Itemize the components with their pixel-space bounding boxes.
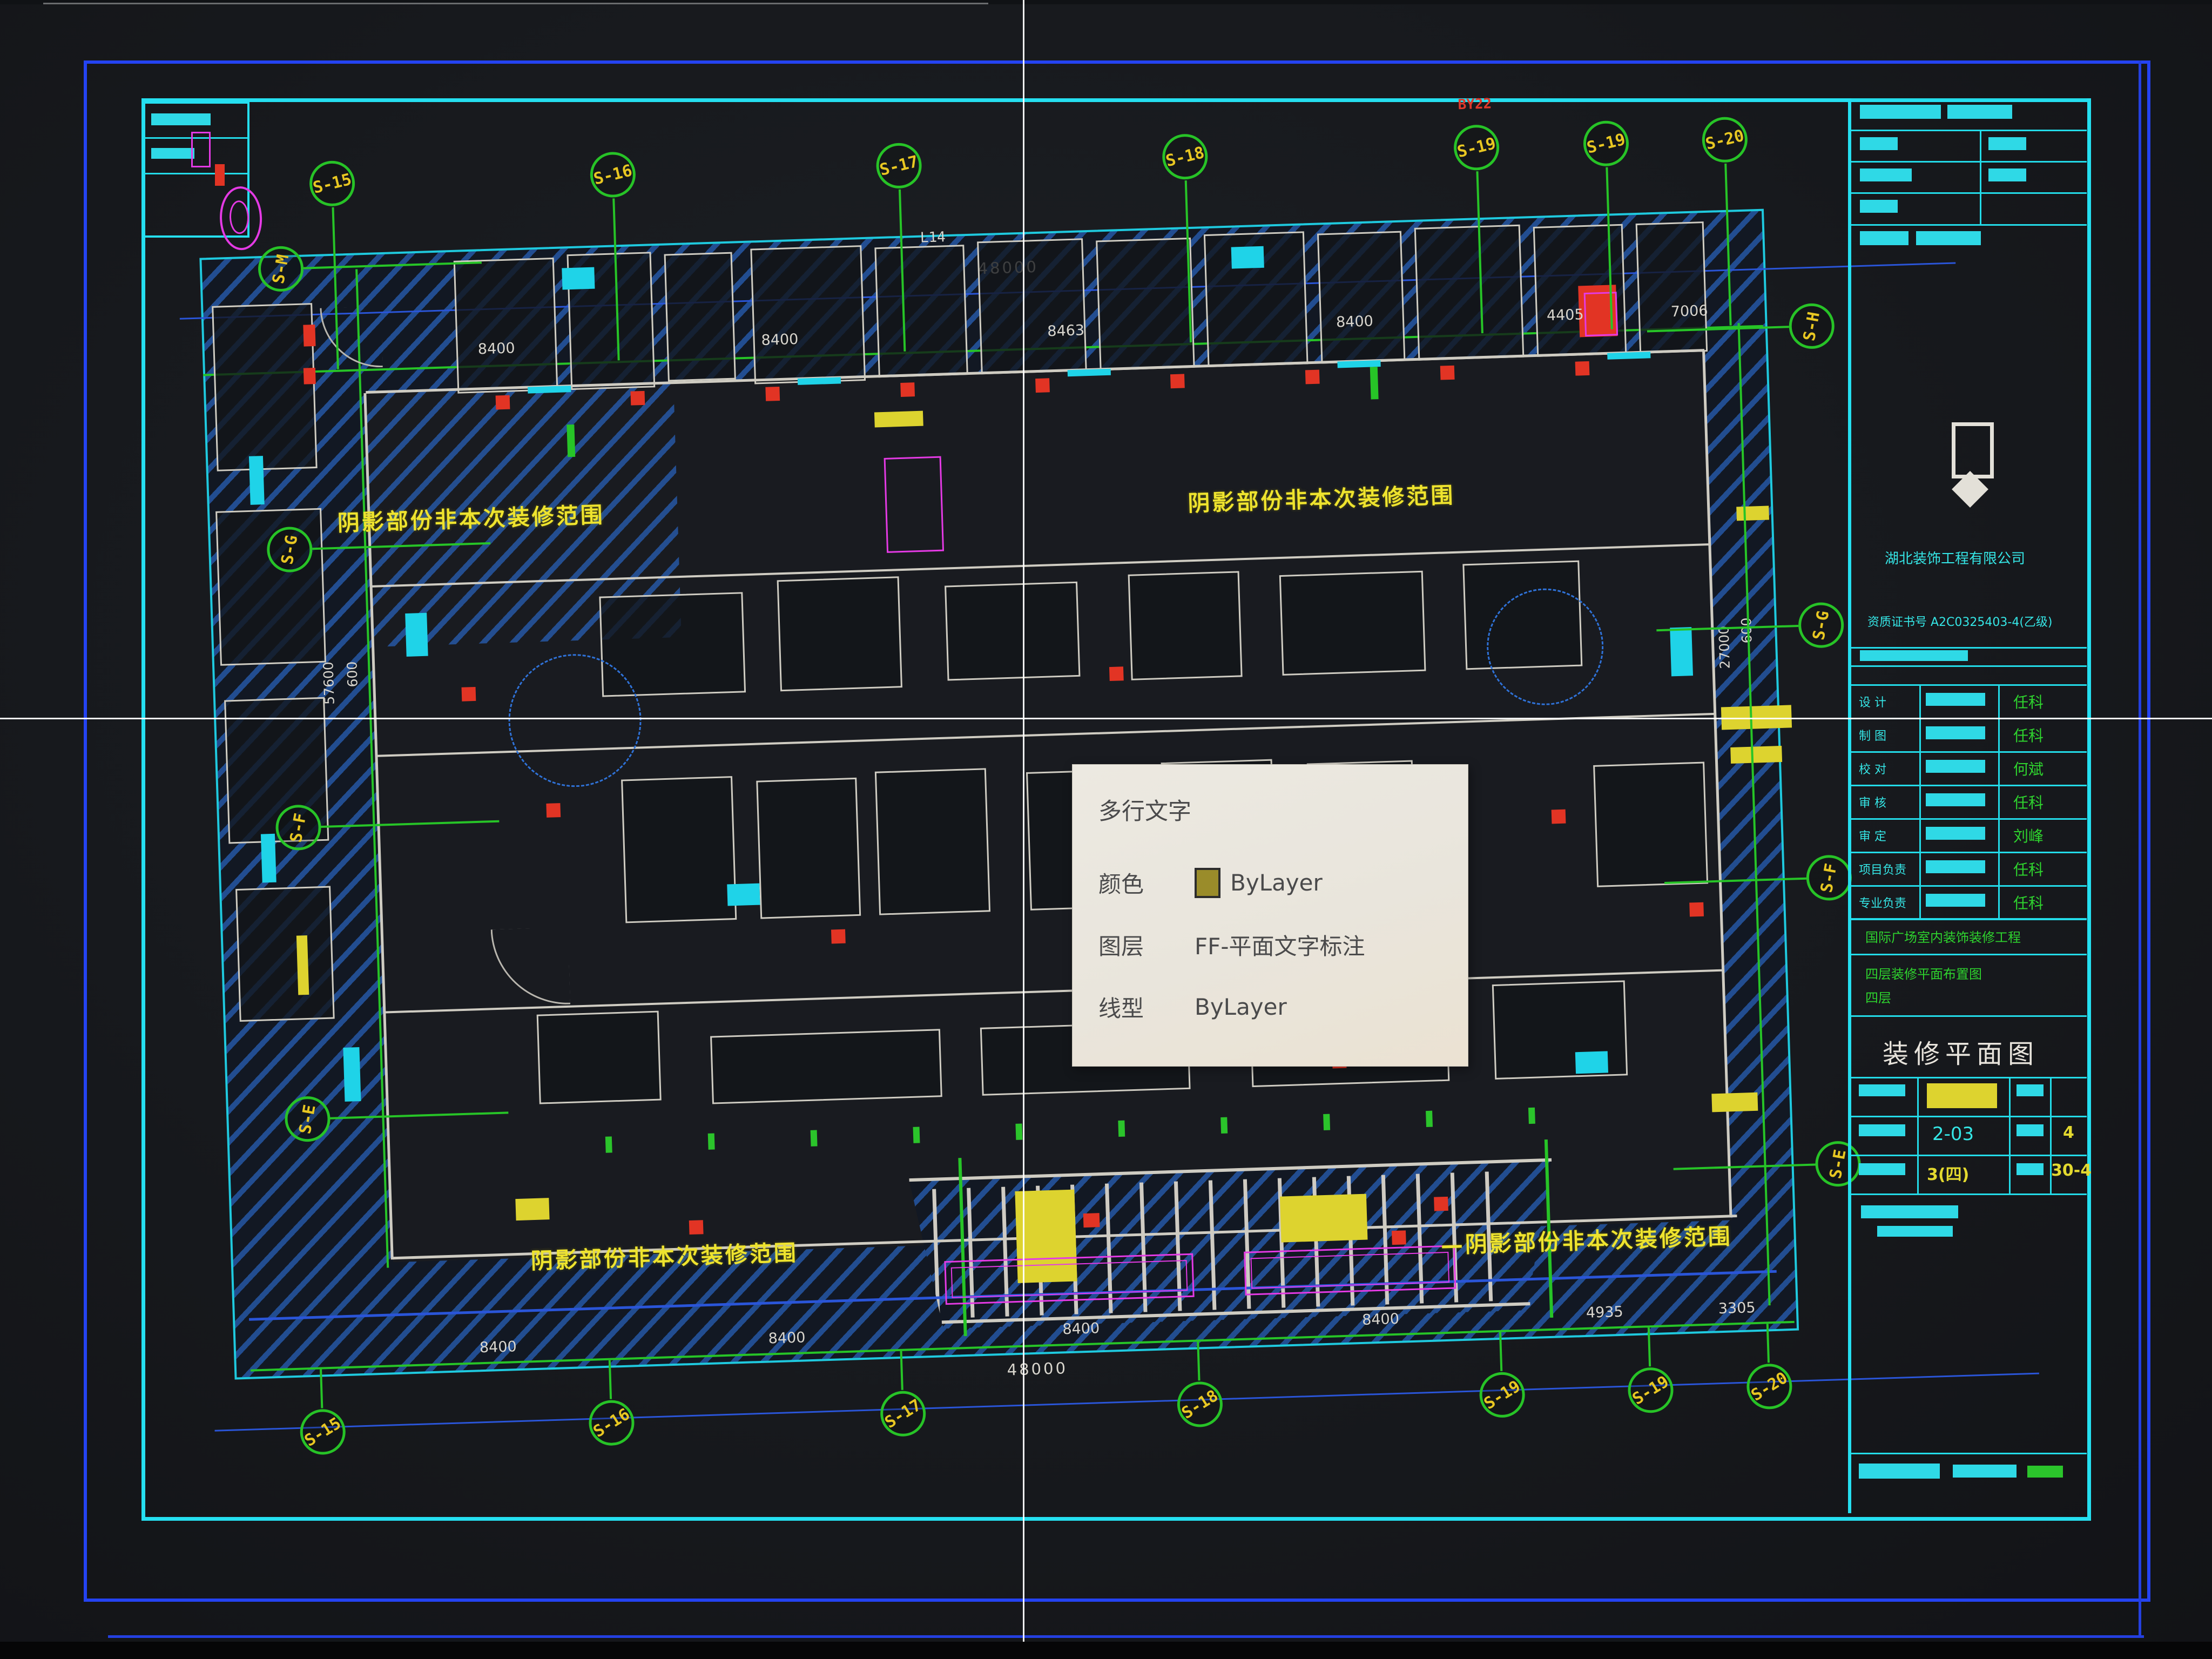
green-tick [913,1127,920,1143]
drawing-subject: 四层装修平面布置图 [1865,963,1982,982]
wall-segment [777,576,902,691]
fixture-cyan [261,834,276,883]
dimension-value: 4935 [1586,1304,1623,1321]
dimension-value: 8400 [477,340,515,358]
wall-segment [1096,238,1195,370]
signature-name-bar [1926,693,1985,706]
column-marker [462,687,476,702]
green-tick [1426,1111,1433,1127]
signature-name-bar [1926,726,1985,739]
axis-bubble-bottom[interactable]: S-17 [880,1390,927,1437]
titleblock-bar [1859,1124,1905,1136]
titleblock-line [1980,130,1981,226]
signature-row-label: 审 核 [1859,793,1886,811]
titleblock-line [1851,818,2087,820]
axis-bubble-bottom[interactable]: S-19 [1479,1372,1526,1419]
titleblock-line [1851,665,2087,667]
titleblock-line [1919,684,1921,919]
sheet-highlight [1927,1083,1997,1108]
signature-name: 何斌 [2013,758,2044,779]
tooltip-property-value: ByLayer [1195,994,1287,1020]
titleblock-line [1851,1453,2087,1454]
fixture-cyan [562,267,595,290]
fixture-cyan [1575,1051,1608,1074]
company-name: 湖北装饰工程有限公司 [1885,548,2025,568]
tooltip-property-value: FF-平面文字标注 [1195,928,1365,961]
banquet-table-inner [951,1260,1188,1298]
tooltip-entity-type: 多行文字 [1098,793,1191,826]
stair-spiral-inner [229,200,249,234]
wall-segment [212,303,318,471]
titleblock-bar [2017,1084,2044,1096]
color-swatch-icon [1195,868,1220,898]
titleblock-line [1851,98,2087,100]
dimension-value: 8400 [768,1329,806,1347]
wall-segment [1128,571,1243,680]
titleblock-line [1851,785,2087,786]
signature-row-label: 制 图 [1859,726,1886,744]
axis-bubble-bottom[interactable]: S-16 [588,1399,635,1446]
axis-bubble-top[interactable]: S-18 [1162,133,1209,180]
wall-segment [215,508,326,666]
axis-bubble-label: S-20 [1704,126,1746,153]
signature-name: 任科 [2013,791,2044,813]
axis-bubble-top[interactable]: S-16 [590,151,637,198]
axis-bubble-label: S-17 [881,1395,925,1432]
tooltip-property-label: 图层 [1098,928,1195,961]
titleblock-line [1851,161,2087,163]
wall-segment [977,238,1087,374]
highlight-yellow [1736,506,1769,521]
titleblock-bar [1947,105,2012,119]
wall-segment [750,245,866,384]
fixture-cyan [1231,246,1264,269]
tooltip-property-label: 颜色 [1098,866,1195,899]
wall-segment [664,252,736,382]
signature-name: 任科 [2013,691,2044,712]
wall-segment [621,776,737,923]
highlight-yellow [874,411,923,428]
fixture-cyan [1670,627,1693,676]
titleblock-line [1851,852,2087,853]
wall-segment [537,1011,662,1104]
fixture-cyan [343,1047,361,1102]
titleblock-bar [1860,168,1912,181]
room-note: L14 [920,229,946,246]
axis-bubble-right[interactable]: S-G [1798,602,1845,649]
axis-bubble-label: S-19 [1455,134,1498,161]
column-marker [831,929,846,944]
column-marker [496,395,510,410]
banquet-table-magenta [1244,1245,1456,1295]
axis-bubble-label: S-F [1817,862,1841,894]
bottom-overall-dimension: 48000 [1007,1359,1068,1379]
sheet-number: 4 [2063,1123,2074,1142]
wall-segment [454,258,558,394]
green-line [1370,367,1379,399]
highlight-yellow [515,1198,549,1220]
signature-name: 任科 [2013,858,2044,880]
axis-bubble-label: S-16 [592,161,635,188]
dimension-value: 8400 [479,1338,517,1356]
axis-bubble-label: S-H [1800,310,1824,342]
titleblock-bar [1860,200,1898,213]
signature-name: 刘峰 [2013,825,2044,846]
titleblock-bar [1953,1465,2017,1478]
title-block: 湖北装饰工程有限公司 资质证书号 A2C0325403-4(乙级) 设 计任科制… [1848,98,2087,1513]
furniture-magenta [884,456,944,553]
column-marker [1552,810,1566,824]
dimension-value: 8400 [1336,313,1374,331]
green-tick [1323,1114,1330,1130]
highlight-yellow [1711,1092,1758,1112]
titleblock-bar [1988,168,2026,181]
axis-bubble-top[interactable]: S-19 [1453,124,1500,171]
titleblock-bar [1877,1226,1953,1237]
axis-bubble-top[interactable]: S-19 [1583,120,1630,167]
titleblock-line [1851,1015,2087,1017]
screen-bezel [0,1642,2212,1659]
column-marker [1689,902,1704,917]
axis-bubble-label: S-19 [1629,1372,1673,1408]
axis-bubble-bottom[interactable]: S-18 [1177,1381,1224,1428]
titleblock-bar [1859,1163,1905,1175]
highlight-yellow [1280,1194,1368,1243]
signature-row-label: 专业负责 [1859,894,1906,911]
layer-note-red: BY22 [1458,96,1492,113]
company-logo-icon [1952,422,1994,478]
tooltip-property-row: 图层FF-平面文字标注 [1098,928,1444,961]
titleblock-line [1851,885,2087,887]
column-marker [689,1220,704,1235]
titleblock-line [1998,684,2000,919]
signature-row-label: 审 定 [1859,827,1886,844]
banquet-table-magenta [944,1253,1194,1305]
column-marker [303,325,315,347]
titleblock-bar [1916,231,1981,245]
dimension-value: 8400 [761,331,799,349]
wall-segment [1279,571,1426,676]
column-marker [900,382,915,397]
column-marker [1109,666,1124,681]
green-tick [1118,1121,1125,1137]
titleblock-bar [1988,137,2026,150]
titleblock-line [1851,751,2087,753]
axis-bubble-bottom[interactable]: S-20 [1746,1363,1793,1410]
axis-bubble-label: S-G [1809,609,1833,642]
signature-name-bar [1926,894,1985,907]
dimension-value: 8400 [1062,1320,1100,1338]
axis-bubble-label: S-16 [590,1405,633,1441]
axis-bubble-label: S-G [278,534,301,566]
axis-bubble-right[interactable]: S-F [1806,854,1853,901]
stage-number: 3(四) [1927,1161,1969,1185]
axis-bubble-top[interactable]: S-17 [875,143,922,190]
fixture-cyan [798,377,841,385]
axis-bubble-label: S-18 [1178,1386,1222,1423]
column-marker [1305,370,1320,385]
highlight-yellow [296,935,309,995]
tooltip-property-value: ByLayer [1230,869,1323,896]
column-marker [546,803,561,818]
column-marker [304,368,316,385]
entity-rollover-tooltip: 多行文字 颜色ByLayer图层FF-平面文字标注线型ByLayer [1072,764,1468,1067]
signature-name-bar [1926,860,1985,873]
titleblock-line [1851,192,2087,194]
furniture-magenta [1584,292,1618,336]
dimension-value: 8463 [1047,322,1085,340]
signature-row-label: 设 计 [1859,693,1886,710]
titleblock-green-bar [2027,1466,2063,1478]
titleblock-line [1851,684,2087,686]
axis-bubble-label: S-E [1826,1148,1850,1180]
left-vertical-dimension-2: 600 [344,661,360,687]
titleblock-bar [1859,1084,1905,1096]
column-marker [1083,1213,1100,1228]
highlight-yellow [1730,746,1782,764]
cad-application-window: 48000 48000 57600 600 27000 600 BY22 L14… [0,0,2212,1659]
right-vertical-dimension: 27000 [1716,626,1732,669]
axis-bubble-top[interactable]: S-15 [309,160,356,207]
signature-name-bar [1926,827,1985,840]
titleblock-line [1851,647,2087,649]
banquet-table-inner [1250,1252,1449,1289]
titleblock-bar [2017,1124,2044,1136]
titleblock-bar [1859,1464,1940,1479]
fixture-cyan [727,884,760,906]
drawing-number: 2-03 [1932,1123,1974,1145]
tooltip-property-label: 线型 [1098,990,1195,1023]
wall-segment [1636,221,1708,354]
wall-segment [945,582,1080,681]
axis-bubble-label: S-20 [1748,1368,1791,1405]
wall-segment [875,768,990,915]
green-tick [1528,1108,1535,1124]
column-marker [1170,374,1185,388]
crosshair-cursor-vertical[interactable] [1023,0,1024,1642]
wall-segment [710,1029,942,1104]
tooltip-property-row: 颜色ByLayer [1098,866,1444,899]
titleblock-line [2009,1077,2011,1193]
green-line [567,424,575,457]
wall-segment [1414,225,1525,361]
column-marker [1434,1197,1448,1211]
axis-bubble-top[interactable]: S-20 [1702,116,1749,163]
column-marker [1440,366,1455,380]
column-marker [1575,361,1590,376]
fixture-cyan [1068,369,1111,377]
column-marker [1392,1230,1406,1245]
axis-bubble-right[interactable]: S-H [1788,303,1835,350]
axis-bubble-bottom[interactable]: S-15 [299,1408,346,1455]
titleblock-line [1917,1077,1919,1193]
screen-glare [43,3,988,4]
signature-row-label: 校 对 [1859,760,1886,777]
titleblock-line [1851,918,2087,920]
wall-segment [1593,762,1708,887]
axis-bubble-label: S-F [287,812,311,844]
fixture-cyan [1607,352,1650,360]
company-certificate: 资质证书号 A2C0325403-4(乙级) [1867,612,2052,630]
stair-spiral-icon [219,186,263,251]
titleblock-bar [1860,105,1941,119]
axis-bubble-label: S-17 [878,152,920,179]
green-tick [605,1136,612,1152]
axis-bubble-label: S-19 [1481,1377,1524,1413]
project-name: 国际广场室内装饰装修工程 [1865,927,2021,946]
titleblock-bar [1860,137,1898,150]
axis-bubble-label: S-15 [301,1414,345,1451]
column-marker [1035,378,1050,393]
titleblock-line [1851,130,2087,131]
wall-segment [1317,231,1405,364]
titleblock-line [1851,1193,2087,1195]
dimension-value: 8400 [1362,1311,1400,1328]
dimension-value: 4405 [1546,306,1584,324]
wall-segment [235,886,335,1022]
signature-name-bar [1926,760,1985,773]
fixture-cyan [528,386,571,394]
tooltip-property-row: 线型ByLayer [1098,990,1444,1023]
signature-name: 任科 [2013,724,2044,746]
wall-segment [874,245,968,377]
axis-bubble-bottom[interactable]: S-19 [1627,1367,1674,1414]
titleblock-bar [1860,650,1968,661]
wall-segment [756,778,861,919]
column-marker [765,387,780,401]
green-tick [1015,1124,1022,1140]
green-tick [811,1130,818,1146]
dimension-value: 7006 [1670,302,1708,320]
axis-bubble-label: S-18 [1164,143,1206,171]
green-tick [708,1133,715,1149]
floor-note: 四层 [1865,987,1891,1006]
signature-row-label: 项目负责 [1859,860,1906,878]
titleblock-bar [1860,231,1908,245]
axis-bubble-label: S-19 [1585,130,1628,157]
archive-number: 30-4 [2051,1161,2092,1180]
signature-name: 任科 [2013,892,2044,913]
fixture-cyan [249,456,265,505]
titleblock-line [1851,224,2087,226]
titleblock-bar [1861,1205,1958,1218]
axis-bubble-label: S-E [295,1103,319,1135]
column-marker [630,391,645,406]
drawing-title: 装修平面图 [1883,1033,2039,1070]
signature-name-bar [1926,793,1985,806]
titleblock-bar [2017,1163,2044,1175]
crosshair-cursor-horizontal[interactable] [0,718,2212,719]
axis-bubble-label: S-M [269,253,293,285]
fixture-cyan [405,613,428,657]
axis-bubble-label: S-15 [311,170,354,197]
green-tick [1220,1117,1228,1134]
titleblock-line [1851,954,2087,955]
dimension-value: 3305 [1718,1299,1756,1317]
